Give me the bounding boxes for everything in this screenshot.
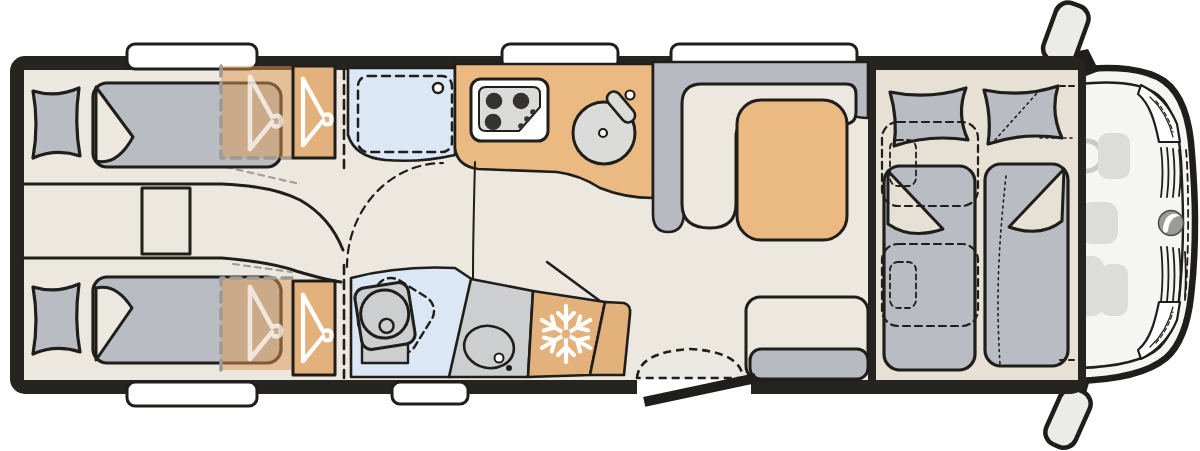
pillow	[33, 88, 80, 158]
shower-drain-icon	[433, 83, 443, 93]
brand-logo-icon	[1159, 211, 1184, 236]
wardrobe-bottom	[293, 281, 335, 375]
bedside-cabinet	[142, 188, 190, 254]
floorplan-canvas	[0, 0, 1200, 451]
wardrobe-overlay-top	[221, 66, 293, 158]
galley-lower	[528, 291, 630, 377]
motorhome-floorplan	[0, 0, 1200, 451]
pillow	[984, 86, 1062, 144]
burner	[485, 114, 502, 131]
window	[127, 382, 257, 406]
burner	[513, 93, 530, 110]
hob-knob	[518, 123, 524, 129]
pillow	[33, 284, 80, 354]
hob-knob	[524, 116, 530, 122]
burner	[486, 93, 503, 110]
wardrobe-top	[293, 66, 335, 158]
dinette-table	[737, 100, 847, 240]
pillow	[890, 88, 968, 146]
side-bench-seat	[750, 349, 868, 379]
wardrobe-overlay-bottom	[221, 278, 293, 370]
sink-drain	[599, 129, 607, 137]
basin-drain	[506, 365, 512, 371]
swivel-toilet	[353, 281, 416, 351]
shower	[348, 68, 455, 161]
cab-seat-ghost	[1100, 264, 1128, 316]
window	[127, 44, 257, 69]
hob-knob	[530, 109, 536, 115]
window	[392, 382, 468, 404]
hob	[471, 79, 548, 141]
basin-tap-icon	[495, 354, 504, 363]
cab-seat-ghost	[1098, 133, 1130, 179]
dinette	[653, 62, 868, 240]
